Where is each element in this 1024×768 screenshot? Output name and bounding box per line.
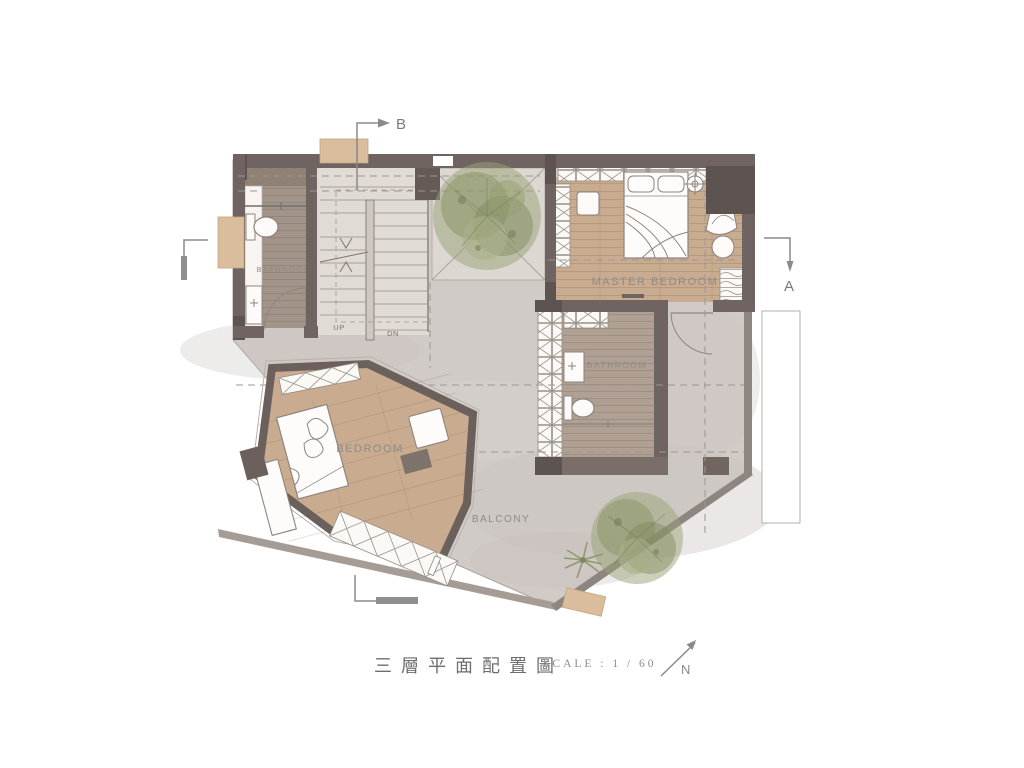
stairs-up-label: UP — [333, 323, 344, 332]
drawing-title: 三層平面配置圖 — [374, 652, 563, 678]
bathroom-upper-label: BATHROOM — [257, 265, 312, 274]
section-marker-b-bottom — [355, 575, 418, 604]
arrow-right-icon — [378, 119, 390, 128]
balcony-label: BALCONY — [472, 514, 530, 525]
section-marker-a-left — [181, 240, 208, 280]
planter-box-top — [320, 139, 368, 163]
north-arrow: N — [655, 636, 707, 682]
section-marker-a-right: A — [764, 238, 794, 295]
section-a-label: A — [784, 278, 794, 295]
floor-plan-sheet: BATHROOM UP DN — [0, 0, 1024, 768]
planter-box-bottom — [562, 588, 605, 616]
stairs-down-label: DN — [387, 329, 399, 338]
drawing-scale: SCALE : 1 / 60 — [543, 658, 657, 670]
planter-box-left — [218, 217, 244, 268]
sink-icon — [246, 286, 262, 324]
bedroom-label: BEDROOM — [336, 443, 403, 455]
sink-icon — [564, 352, 584, 382]
stool-icon — [577, 192, 599, 215]
room-bathroom-middle: BATHROOM — [538, 307, 654, 457]
tree-icon-balcony — [591, 492, 683, 584]
rug-strip — [622, 294, 644, 298]
section-b-label: B — [396, 116, 406, 133]
tree-icon-lightwell — [433, 162, 541, 270]
bathroom-middle-label: BATHROOM — [587, 360, 647, 370]
lower-roof-outline — [762, 311, 800, 523]
north-arrowhead-icon — [687, 640, 697, 650]
arrow-down-icon — [787, 261, 794, 272]
side-table-icon — [712, 236, 734, 258]
master-bedroom-label: MASTER BEDROOM — [592, 276, 719, 288]
north-label: N — [681, 662, 690, 677]
room-bathroom-upper: BATHROOM — [245, 168, 311, 330]
bed-icon — [624, 172, 688, 258]
